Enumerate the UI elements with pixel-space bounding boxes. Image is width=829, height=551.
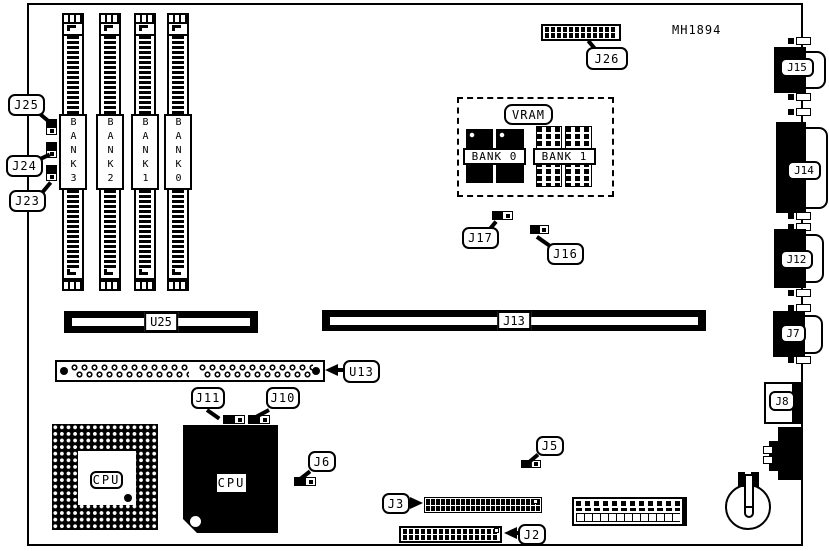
simm-clip	[167, 268, 189, 280]
pga-center-area: CPU	[78, 451, 136, 505]
mount-post	[788, 290, 794, 296]
pin-row	[76, 371, 189, 378]
callout-j10: J10	[266, 387, 300, 409]
pin-row	[71, 364, 189, 371]
callout-u13: U13	[343, 360, 380, 383]
callout-j26: J26	[586, 47, 628, 70]
simm-slot-bank0: BANK0	[167, 13, 189, 291]
simm-contacts	[99, 36, 121, 114]
header-j26	[541, 24, 621, 41]
connector-j7-label: J7	[780, 324, 806, 343]
simm-clip	[167, 24, 189, 36]
mount-post	[788, 38, 794, 44]
simm-slot-bank3: BANK3	[62, 13, 84, 291]
slot-u25-label: U25	[144, 312, 178, 332]
slot-j13: J13	[322, 310, 706, 331]
slot-u25: U25	[64, 311, 258, 333]
callout-j24: J24	[6, 155, 43, 177]
mount-tab	[796, 108, 811, 116]
pin-row	[403, 529, 498, 534]
arrow-j3	[410, 497, 423, 509]
simm-slot-bank1: BANK1	[134, 13, 156, 291]
simm-clip	[99, 268, 121, 280]
simm-top-cap	[134, 13, 156, 24]
simm-bank-label: BANK0	[164, 114, 192, 190]
cpu-pga-socket: CPU	[52, 424, 158, 530]
mount-tab	[796, 356, 811, 364]
mount-tab	[796, 289, 811, 297]
power-socket-row	[576, 513, 680, 522]
simm-bottom-cap	[62, 280, 84, 291]
simm-bank-label: BANK1	[131, 114, 159, 190]
header-j2	[399, 526, 502, 543]
pga-pin1-dot	[124, 494, 132, 502]
pin-row	[403, 535, 498, 540]
mount-tab	[796, 93, 811, 101]
simm-clip	[62, 24, 84, 36]
simm-bottom-cap	[99, 280, 121, 291]
audio-jack	[778, 427, 803, 480]
simm-contacts	[62, 36, 84, 114]
jumper-block-j23	[46, 165, 57, 181]
jumper-block-j17	[492, 211, 513, 220]
cpu-pin1-dot	[190, 516, 201, 527]
vram-bank1-label: BANK 1	[533, 148, 596, 165]
mount-tab	[796, 37, 811, 45]
mount-post	[788, 94, 794, 100]
battery-post	[744, 474, 754, 518]
cpu-socket-label: CPU	[90, 471, 123, 489]
audio-jack-pin	[763, 456, 773, 464]
simm-top-cap	[167, 13, 189, 24]
simm-top-cap	[62, 13, 84, 24]
simm-bottom-cap	[167, 280, 189, 291]
callout-j5: J5	[536, 436, 564, 456]
simm-bottom-cap	[134, 280, 156, 291]
mount-post	[788, 213, 794, 219]
u13-pin-group	[71, 364, 189, 379]
simm-contacts	[62, 190, 84, 268]
vram-label: VRAM	[504, 104, 553, 125]
cpu-chip: CPU	[183, 425, 278, 533]
vram-bank0-label: BANK 0	[463, 148, 526, 165]
u13-end-dot	[60, 367, 68, 375]
simm-clip	[134, 24, 156, 36]
callout-j16: J16	[547, 243, 584, 265]
header-j3	[424, 497, 542, 513]
power-connector	[572, 497, 687, 526]
simm-clip	[134, 268, 156, 280]
mount-post	[788, 357, 794, 363]
callout-j17: J17	[462, 227, 499, 249]
audio-jack-pin	[763, 446, 773, 454]
connector-j12-label: J12	[780, 250, 813, 269]
connector-u13	[55, 360, 325, 382]
simm-contacts	[99, 190, 121, 268]
callout-j6: J6	[308, 451, 336, 472]
pin-row	[545, 33, 617, 38]
mount-tab	[796, 212, 811, 220]
pin-row	[426, 506, 540, 512]
callout-j3: J3	[382, 493, 410, 514]
simm-bank-label: BANK3	[59, 114, 87, 190]
motherboard-diagram: MH1894 BANK3 BANK2 BANK1 BANK0	[0, 0, 829, 551]
callout-j23: J23	[9, 190, 46, 212]
simm-slot-bank2: BANK2	[99, 13, 121, 291]
simm-contacts	[134, 36, 156, 114]
pin-row	[199, 364, 313, 371]
u13-end-dot	[312, 367, 320, 375]
header-j3-key	[533, 499, 538, 504]
callout-j11: J11	[191, 387, 225, 409]
callout-j25: J25	[8, 94, 45, 116]
simm-contacts	[134, 190, 156, 268]
jumper-block-j11	[223, 415, 245, 424]
callout-j2: J2	[518, 524, 546, 545]
header-j2-key	[494, 528, 499, 533]
connector-j15-label: J15	[780, 58, 814, 77]
simm-clip	[99, 24, 121, 36]
simm-bank-label: BANK2	[96, 114, 124, 190]
connector-j8-label: J8	[769, 391, 795, 411]
part-number: MH1894	[672, 23, 721, 37]
simm-clip	[62, 268, 84, 280]
cpu-chip-label: CPU	[217, 474, 246, 492]
battery-post-tick	[746, 506, 752, 508]
u13-pin-group	[199, 364, 313, 379]
simm-top-cap	[99, 13, 121, 24]
simm-contacts	[167, 36, 189, 114]
jumper-block-j16	[530, 225, 549, 234]
mount-post	[788, 109, 794, 115]
pin-row	[426, 499, 540, 505]
simm-contacts	[167, 190, 189, 268]
power-pin-row	[576, 508, 680, 511]
power-pin-row	[576, 501, 680, 506]
slot-j13-label: J13	[497, 311, 531, 330]
pin-row	[545, 27, 617, 32]
pin-row	[204, 371, 313, 378]
connector-j14-label: J14	[787, 161, 821, 180]
